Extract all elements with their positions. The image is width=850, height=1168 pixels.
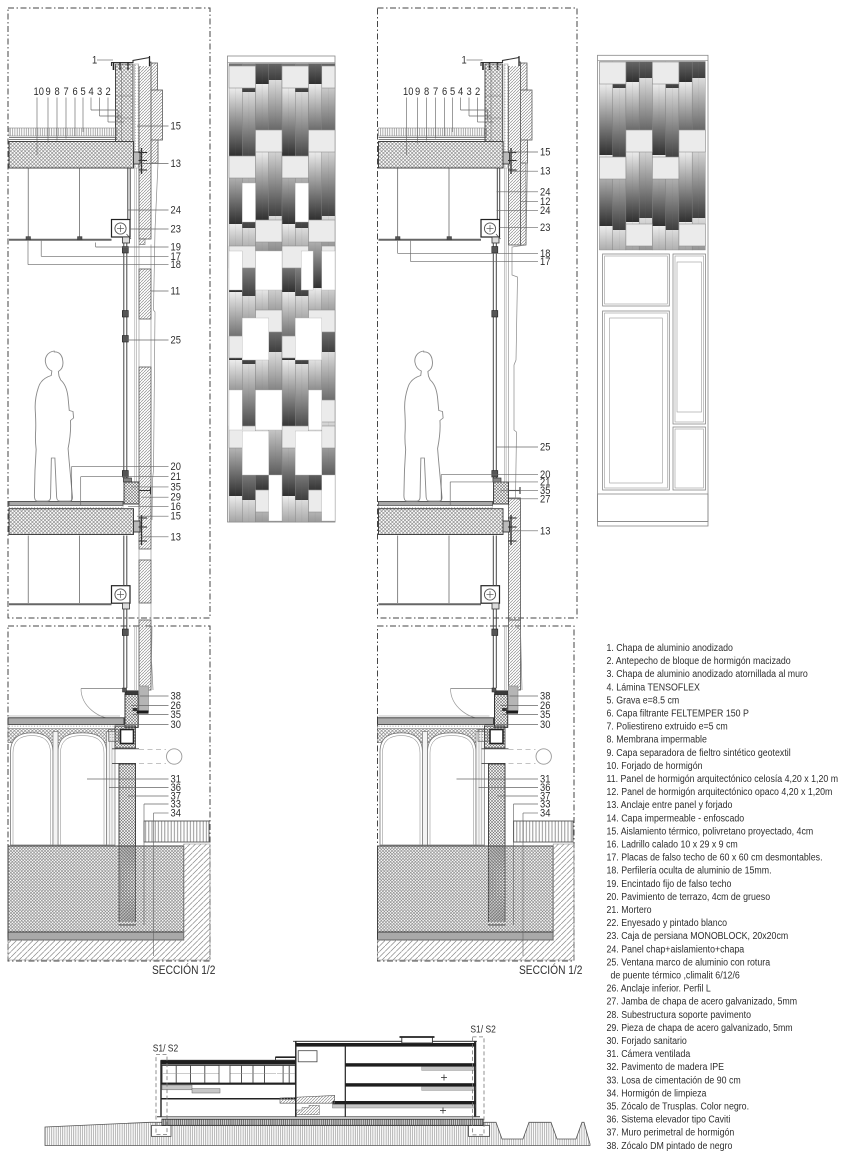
svg-text:5: 5	[81, 86, 86, 98]
svg-text:16. Ladrillo calado 10 x 29 x: 16. Ladrillo calado 10 x 29 x 9 cm	[607, 839, 738, 851]
svg-text:11. Panel de hormigón arquitec: 11. Panel de hormigón arquitectónico cel…	[607, 773, 839, 785]
svg-text:31. Cámera ventilada: 31. Cámera ventilada	[607, 1048, 691, 1060]
svg-text:18. Perfilería oculta de alumi: 18. Perfilería oculta de aluminio de 15m…	[607, 865, 772, 877]
svg-text:S1/ S2: S1/ S2	[470, 1024, 495, 1035]
svg-text:13: 13	[540, 526, 551, 538]
svg-text:2. Antepecho de bloque de horm: 2. Antepecho de bloque de hormigón maciz…	[607, 655, 791, 667]
svg-text:30: 30	[540, 719, 551, 731]
svg-text:9. Capa separadora de fieltro: 9. Capa separadora de fieltro sintético …	[607, 747, 791, 759]
svg-text:1: 1	[462, 55, 467, 67]
svg-text:3: 3	[467, 86, 472, 98]
svg-text:12. Panel de hormigón arquitec: 12. Panel de hormigón arquitectónico opa…	[607, 786, 833, 798]
svg-text:de puente térmico ,climalit 6/: de puente térmico ,climalit 6/12/6	[611, 970, 740, 982]
svg-text:2: 2	[475, 86, 480, 98]
svg-text:25: 25	[171, 335, 182, 347]
svg-text:10: 10	[403, 86, 414, 98]
svg-text:8: 8	[424, 86, 429, 98]
svg-text:15: 15	[171, 511, 182, 523]
svg-text:4. Lámina TENSOFLEX: 4. Lámina TENSOFLEX	[607, 682, 701, 694]
svg-text:24. Panel chap+aislamiento+cha: 24. Panel chap+aislamiento+chapa	[607, 944, 745, 956]
svg-text:22. Enyesado y pintado blanco: 22. Enyesado y pintado blanco	[607, 917, 728, 929]
svg-text:36. Sistema elevador tipo Cavi: 36. Sistema elevador tipo Caviti	[607, 1114, 731, 1126]
svg-text:25. Ventana marco de aluminio: 25. Ventana marco de aluminio con rotura	[607, 957, 771, 969]
svg-text:S1/ S2: S1/ S2	[153, 1043, 178, 1054]
svg-text:7: 7	[433, 86, 438, 98]
svg-text:23: 23	[171, 224, 182, 236]
svg-text:34: 34	[540, 808, 551, 820]
svg-text:33. Losa de cimentación de 90: 33. Losa de cimentación de 90 cm	[607, 1075, 741, 1087]
svg-text:19. Encintado fijo de falso te: 19. Encintado fijo de falso techo	[607, 878, 732, 890]
svg-text:20. Pavimiento de terrazo, 4cm: 20. Pavimiento de terrazo, 4cm de grueso	[607, 891, 771, 903]
svg-text:13: 13	[171, 158, 182, 170]
svg-text:15: 15	[171, 121, 182, 133]
svg-text:32. Pavimento de madera IPE: 32. Pavimento de madera IPE	[607, 1062, 725, 1074]
svg-text:8: 8	[55, 86, 60, 98]
svg-text:1: 1	[92, 55, 97, 67]
svg-text:37. Muro perimetral de hormigó: 37. Muro perimetral de hormigón	[607, 1127, 735, 1139]
svg-text:7. Poliestireno extruido e=5 c: 7. Poliestireno extruido e=5 cm	[607, 721, 728, 733]
svg-text:4: 4	[458, 86, 463, 98]
svg-text:30. Forjado sanitario: 30. Forjado sanitario	[607, 1035, 687, 1047]
svg-text:2: 2	[106, 86, 111, 98]
svg-text:9: 9	[415, 86, 420, 98]
svg-text:15: 15	[540, 147, 551, 159]
svg-text:6: 6	[442, 86, 447, 98]
svg-text:27. Jamba de chapa de acero ga: 27. Jamba de chapa de acero galvanizado,…	[607, 996, 798, 1008]
svg-text:21. Mortero: 21. Mortero	[607, 904, 652, 916]
svg-text:3. Chapa de aluminio anodizado: 3. Chapa de aluminio anodizado atornilla…	[607, 669, 808, 681]
svg-text:23: 23	[540, 222, 551, 234]
svg-text:7: 7	[64, 86, 69, 98]
svg-text:35. Zócalo de Trusplas. Color: 35. Zócalo de Trusplas. Color negro.	[607, 1101, 750, 1113]
svg-text:13: 13	[540, 166, 551, 178]
svg-text:10: 10	[34, 86, 45, 98]
svg-text:14. Capa impermeable - enfosca: 14. Capa impermeable - enfoscado	[607, 813, 745, 825]
svg-text:11: 11	[171, 286, 181, 298]
svg-text:4: 4	[89, 86, 94, 98]
svg-text:5: 5	[450, 86, 455, 98]
svg-text:3: 3	[97, 86, 102, 98]
svg-text:10. Forjado de hormigón: 10. Forjado de hormigón	[607, 760, 703, 772]
svg-text:6. Capa filtrante FELTEMPER 15: 6. Capa filtrante FELTEMPER 150 P	[607, 708, 749, 720]
svg-text:23. Caja de persiana MONOBLOCK: 23. Caja de persiana MONOBLOCK, 20x20cm	[607, 931, 789, 943]
svg-text:5. Grava e=8.5 cm: 5. Grava e=8.5 cm	[607, 695, 680, 707]
svg-text:13. Anclaje entre panel y forj: 13. Anclaje entre panel y forjado	[607, 800, 733, 812]
svg-text:9: 9	[46, 86, 51, 98]
svg-text:8. Membrana impermable: 8. Membrana impermable	[607, 734, 707, 746]
svg-text:17: 17	[540, 256, 551, 268]
svg-text:18: 18	[171, 259, 182, 271]
svg-text:34. Hormigón de limpieza: 34. Hormigón de limpieza	[607, 1088, 707, 1100]
svg-text:29. Pieza de chapa de acero ga: 29. Pieza de chapa de acero galvanizado,…	[607, 1022, 793, 1034]
svg-text:26. Anclaje inferior. Perfil L: 26. Anclaje inferior. Perfil L	[607, 983, 712, 995]
svg-text:38. Zócalo DM pintado de negro: 38. Zócalo DM pintado de negro	[607, 1140, 733, 1152]
svg-text:24: 24	[540, 205, 551, 217]
svg-text:13: 13	[171, 532, 182, 544]
svg-text:27: 27	[540, 494, 551, 506]
svg-text:28. Subestructura soporte pavi: 28. Subestructura soporte pavimento	[607, 1009, 752, 1021]
svg-text:34: 34	[171, 808, 182, 820]
svg-text:1. Chapa de aluminio anodizado: 1. Chapa de aluminio anodizado	[607, 642, 733, 654]
svg-text:24: 24	[171, 205, 182, 217]
svg-text:25: 25	[540, 442, 551, 454]
svg-text:15. Aislamiento térmico, poliv: 15. Aislamiento térmico, polivretano pro…	[607, 826, 814, 838]
svg-text:17. Placas de falso techo de 6: 17. Placas de falso techo de 60 x 60 cm …	[607, 852, 823, 864]
svg-text:6: 6	[73, 86, 78, 98]
svg-text:SECCIÓN 1/2: SECCIÓN 1/2	[152, 963, 215, 977]
svg-text:SECCIÓN 1/2: SECCIÓN 1/2	[519, 963, 582, 977]
svg-text:30: 30	[171, 719, 182, 731]
